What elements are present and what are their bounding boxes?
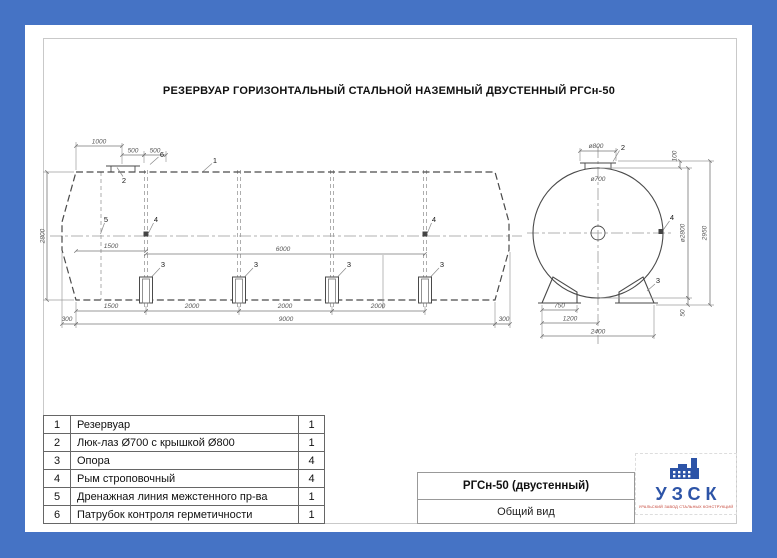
part-name: Дренажная линия межстенного пр-ва: [71, 488, 299, 506]
part-qty: 1: [299, 488, 325, 506]
part-qty: 1: [299, 506, 325, 524]
part-num: 3: [44, 452, 71, 470]
part-num: 2: [44, 434, 71, 452]
drawing-title: РЕЗЕРВУАР ГОРИЗОНТАЛЬНЫЙ СТАЛЬНОЙ НАЗЕМН…: [43, 85, 735, 97]
part-num: 4: [44, 470, 71, 488]
part-num: 6: [44, 506, 71, 524]
table-row: 5 Дренажная линия межстенного пр-ва 1: [44, 488, 325, 506]
part-qty: 1: [299, 416, 325, 434]
uzsk-logo: УЗСК УРАЛЬСКИЙ ЗАВОД СТАЛЬНЫХ КОНСТРУКЦИ…: [635, 453, 737, 515]
table-row: 2 Люк-лаз Ø700 с крышкой Ø800 1: [44, 434, 325, 452]
table-row: 1 Резервуар 1: [44, 416, 325, 434]
logo-tagline: УРАЛЬСКИЙ ЗАВОД СТАЛЬНЫХ КОНСТРУКЦИЙ: [639, 504, 734, 509]
part-qty: 1: [299, 434, 325, 452]
table-row: 3 Опора 4: [44, 452, 325, 470]
logo-name: УЗСК: [636, 485, 736, 504]
scanned-drawing-page: { "window": { "background_color": "#4573…: [0, 0, 777, 558]
table-row: 4 Рым строповочный 4: [44, 470, 325, 488]
parts-table: 1 Резервуар 1 2 Люк-лаз Ø700 с крышкой Ø…: [43, 415, 325, 524]
title-block-view: Общий вид: [418, 500, 634, 523]
drawing-sheet: РЕЗЕРВУАР ГОРИЗОНТАЛЬНЫЙ СТАЛЬНОЙ НАЗЕМН…: [25, 25, 752, 532]
part-name: Патрубок контроля герметичности: [71, 506, 299, 524]
part-num: 5: [44, 488, 71, 506]
part-num: 1: [44, 416, 71, 434]
table-row: 6 Патрубок контроля герметичности 1: [44, 506, 325, 524]
part-name: Опора: [71, 452, 299, 470]
part-name: Рым строповочный: [71, 470, 299, 488]
title-block-model: РГСн-50 (двустенный): [418, 473, 634, 500]
part-name: Резервуар: [71, 416, 299, 434]
title-block: РГСн-50 (двустенный) Общий вид: [417, 472, 635, 524]
part-name: Люк-лаз Ø700 с крышкой Ø800: [71, 434, 299, 452]
part-qty: 4: [299, 470, 325, 488]
factory-icon: [663, 456, 709, 480]
part-qty: 4: [299, 452, 325, 470]
